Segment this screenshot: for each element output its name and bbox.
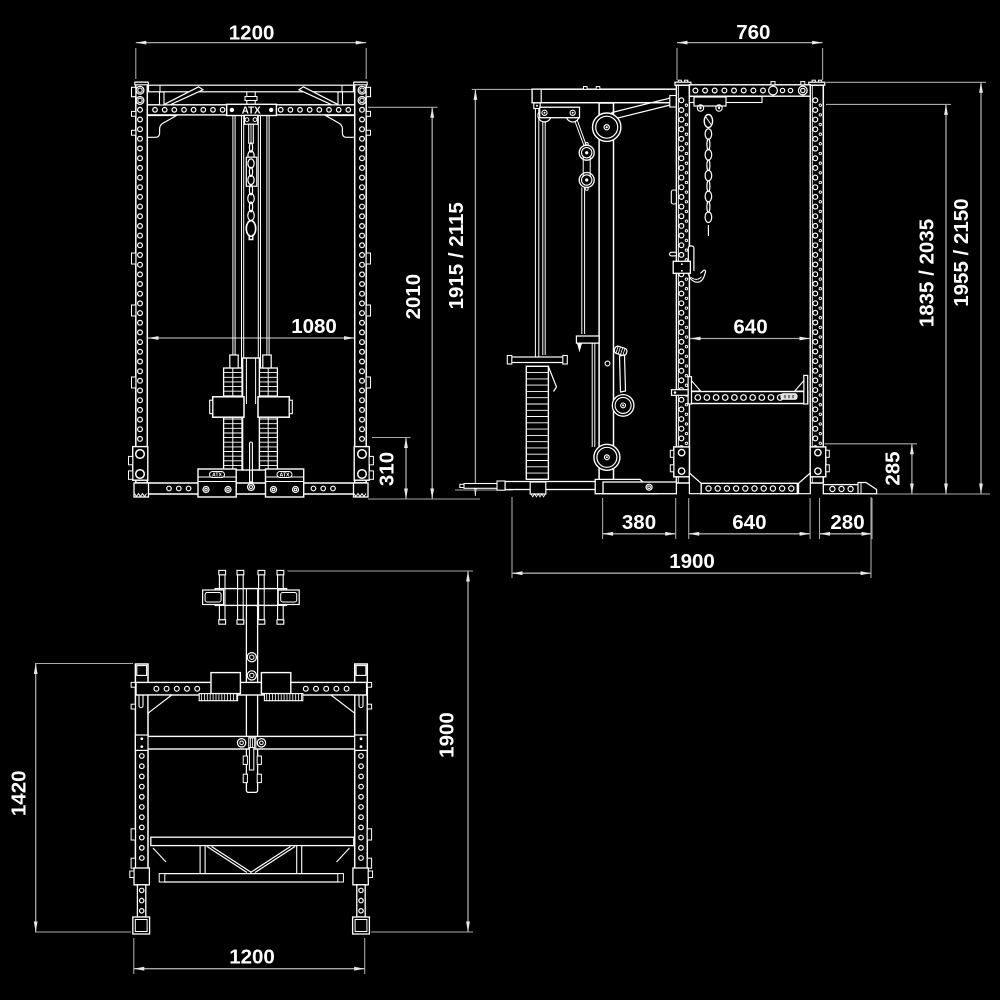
svg-text:380: 380 (622, 511, 656, 534)
svg-text:ATX: ATX (280, 473, 291, 479)
svg-text:2010: 2010 (402, 274, 425, 320)
svg-text:280: 280 (830, 511, 864, 534)
svg-text:1900: 1900 (669, 550, 715, 573)
svg-text:1200: 1200 (229, 22, 275, 45)
svg-text:1900: 1900 (436, 712, 459, 758)
svg-text:1080: 1080 (291, 315, 337, 338)
svg-text:285: 285 (882, 451, 905, 485)
svg-text:1955 / 2150: 1955 / 2150 (950, 198, 973, 306)
svg-text:640: 640 (732, 511, 766, 534)
svg-text:760: 760 (736, 21, 770, 44)
svg-text:1915 / 2115: 1915 / 2115 (445, 202, 468, 309)
svg-text:1420: 1420 (8, 770, 31, 816)
svg-text:1835 / 2035: 1835 / 2035 (916, 219, 939, 327)
svg-text:ATX: ATX (212, 473, 223, 479)
svg-text:1200: 1200 (229, 946, 275, 969)
svg-text:310: 310 (376, 452, 399, 486)
svg-text:640: 640 (733, 316, 767, 339)
